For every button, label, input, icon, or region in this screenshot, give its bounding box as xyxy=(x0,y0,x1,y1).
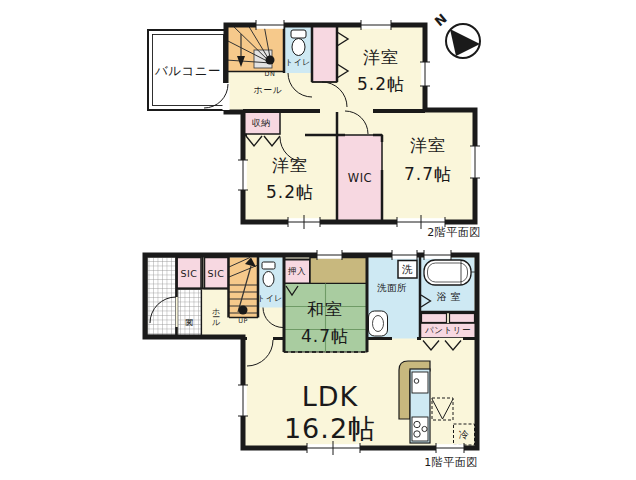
washer-box xyxy=(398,261,417,279)
sic-closet-left xyxy=(177,258,201,289)
kitchen-sink-icon xyxy=(412,372,428,393)
stairs-pole-1f xyxy=(239,306,248,315)
closet-counter-top xyxy=(310,258,367,284)
balcony-door-gap xyxy=(223,83,230,110)
floorplan-drawing xyxy=(0,0,636,480)
entrance-porch xyxy=(148,258,176,336)
floorplan-canvas: N バルコニー DN ホール トイレ 収納 洋室 5.2帖 洋室 5.2帖 WI… xyxy=(0,0,636,480)
stove-icon xyxy=(412,417,428,441)
oshiire-closet xyxy=(284,260,310,284)
genkan-floor xyxy=(178,290,201,336)
stairs-pole-2f xyxy=(266,56,275,65)
balcony xyxy=(148,30,228,110)
compass-icon xyxy=(446,24,480,58)
closet-strip-2f xyxy=(312,25,337,82)
sic-closet-right xyxy=(205,258,229,289)
floor2-plan xyxy=(148,20,480,229)
floor1-plan xyxy=(145,250,478,455)
wic-room xyxy=(337,135,382,222)
washbasin-icon xyxy=(369,311,388,336)
toilet-icon-1f xyxy=(262,262,275,287)
toilet-icon-2f xyxy=(291,30,306,56)
storage-2f xyxy=(243,112,280,134)
